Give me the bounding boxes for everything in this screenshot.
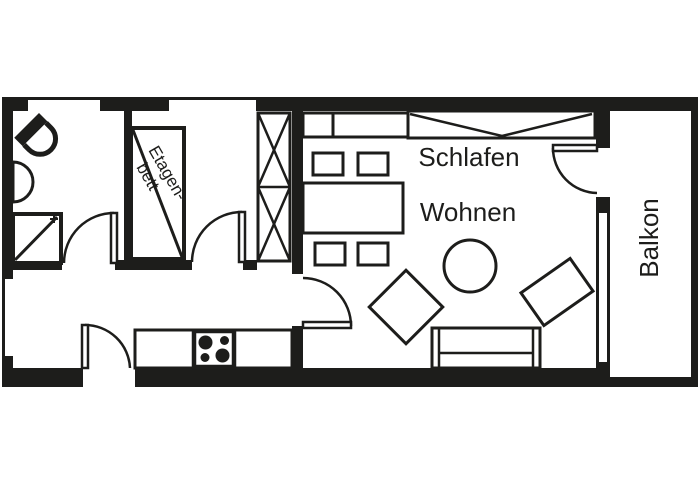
- bathroom: [13, 113, 63, 263]
- sink-icon: [13, 162, 33, 202]
- wall-balcony-right: [691, 97, 698, 387]
- living-room: Schlafen Wohnen: [303, 111, 595, 368]
- chair-bottom-left: [315, 243, 345, 265]
- door-bathroom: [64, 213, 117, 263]
- dining-table: [303, 183, 403, 233]
- hall-closet: [258, 113, 290, 261]
- round-table: [444, 240, 496, 292]
- floorplan-drawing: Etagen- bett: [0, 0, 700, 500]
- wardrobe-top: [408, 111, 595, 138]
- window-livingroom-balcony: [596, 213, 610, 362]
- walls: [2, 97, 698, 387]
- room-label-wohnen: Wohnen: [420, 197, 516, 227]
- door-entry: [82, 325, 130, 368]
- balcony: Balkon: [634, 198, 664, 278]
- kitchen: [135, 330, 292, 368]
- stove-icon: [194, 331, 234, 367]
- wall-top: [2, 97, 698, 111]
- cabinet-large: [333, 113, 410, 137]
- opening-entry-door: [83, 368, 135, 387]
- floorplan-canvas: Etagen- bett: [0, 0, 700, 500]
- shower-icon: [13, 214, 61, 263]
- door-livingroom: [303, 278, 351, 328]
- opening-balcony-door: [596, 148, 610, 197]
- chair-top-left: [313, 153, 343, 175]
- wall-balcony-bottom: [610, 377, 698, 387]
- door-balcony: [553, 145, 597, 193]
- cabinet-small: [303, 113, 333, 137]
- bunkroom: Etagen- bett: [131, 128, 191, 259]
- window-bathroom: [28, 97, 100, 111]
- chair-bottom-right: [358, 243, 388, 265]
- room-label-schlafen: Schlafen: [418, 142, 519, 172]
- chair-top-right: [358, 153, 388, 175]
- wall-livingroom-left-lower: [292, 326, 303, 387]
- door-bunkroom: [192, 212, 245, 262]
- window-hall-left: [2, 279, 13, 356]
- wall-livingroom-left-upper: [292, 111, 303, 274]
- window-bunkroom: [169, 97, 256, 111]
- wall-bunkroom-bottom: [124, 260, 192, 270]
- room-label-balkon: Balkon: [634, 198, 664, 278]
- armchair-right: [521, 258, 593, 325]
- toilet-icon: [14, 113, 63, 162]
- sofa: [432, 328, 540, 368]
